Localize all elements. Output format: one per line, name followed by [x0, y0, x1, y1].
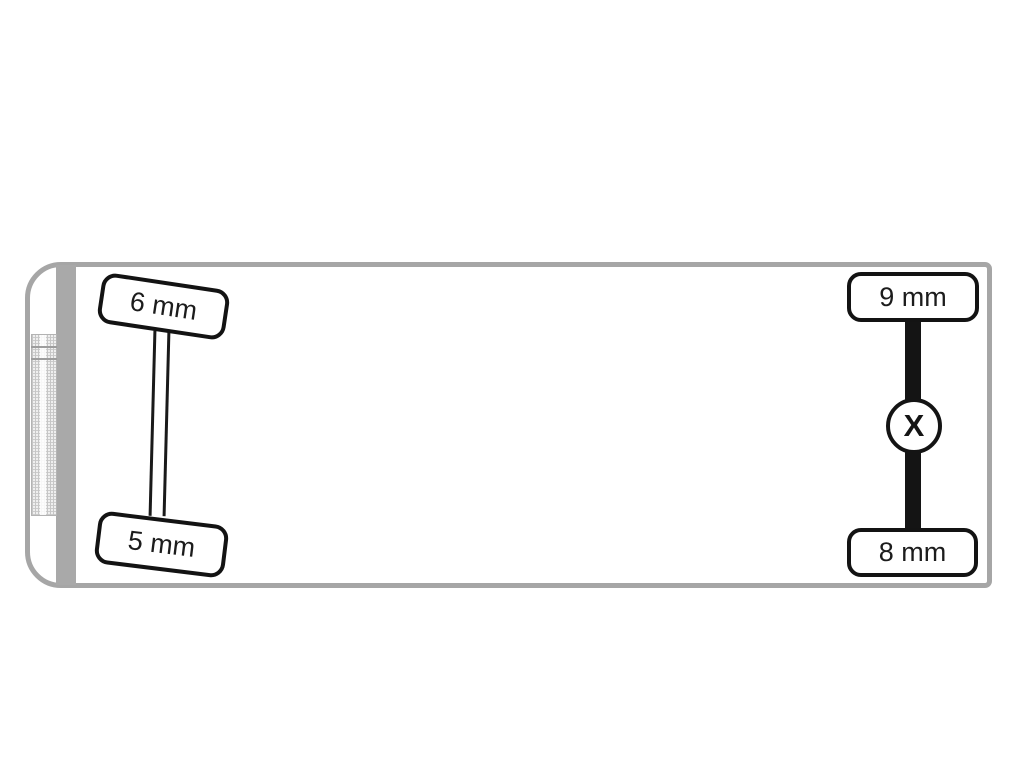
tread-depth-label-front-bottom: 5 mm: [126, 525, 197, 564]
tread-depth-label-rear-bottom: 8 mm: [879, 537, 947, 568]
tread-depth-label-front-top: 6 mm: [128, 286, 199, 327]
driven-axle-x-label: X: [904, 408, 925, 444]
windshield-divider-line: [31, 358, 57, 360]
windshield-gloss-stripe: [40, 335, 46, 515]
windshield-divider-line: [31, 346, 57, 348]
driven-axle-x-marker: X: [886, 398, 942, 454]
cab-divider-bar: [56, 265, 76, 585]
tread-depth-label-rear-top: 9 mm: [879, 282, 947, 313]
diagram-canvas: X 6 mm 5 mm 9 mm 8 mm: [0, 0, 1024, 768]
wheel-rear-top: 9 mm: [847, 272, 979, 322]
wheel-rear-bottom: 8 mm: [847, 528, 978, 577]
